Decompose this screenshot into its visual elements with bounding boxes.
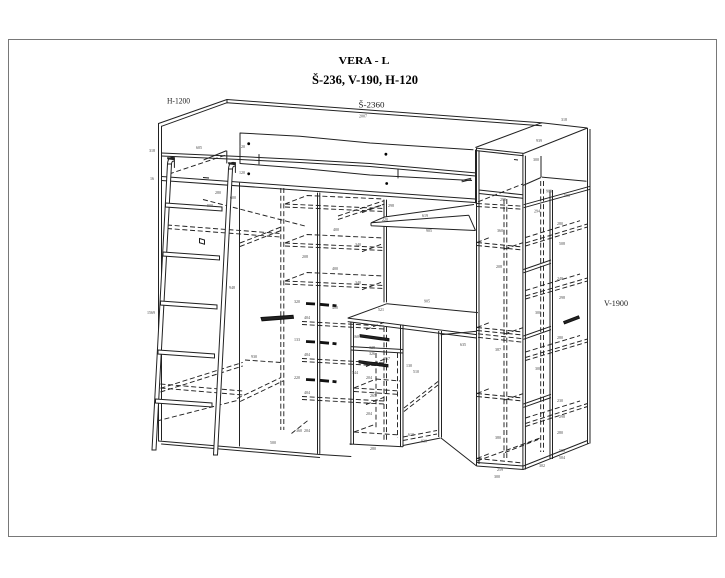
- svg-text:544: 544: [352, 370, 358, 375]
- svg-text:318: 318: [561, 117, 567, 122]
- svg-text:204: 204: [304, 428, 310, 433]
- svg-text:1569: 1569: [147, 310, 155, 315]
- svg-text:510: 510: [413, 369, 419, 374]
- svg-text:404: 404: [304, 315, 310, 320]
- svg-text:259: 259: [497, 467, 503, 472]
- svg-text:VERA - L: VERA - L: [339, 56, 390, 67]
- svg-text:280: 280: [370, 446, 376, 451]
- svg-text:320: 320: [294, 299, 300, 304]
- svg-text:280: 280: [557, 430, 563, 435]
- svg-text:500: 500: [559, 448, 565, 453]
- svg-text:635: 635: [460, 342, 466, 347]
- svg-text:130: 130: [406, 363, 412, 368]
- svg-text:903: 903: [546, 189, 552, 194]
- svg-text:360: 360: [497, 228, 503, 233]
- svg-text:298: 298: [559, 295, 565, 300]
- svg-text:298: 298: [559, 414, 565, 419]
- svg-text:360: 360: [296, 428, 302, 433]
- svg-text:400: 400: [332, 305, 338, 310]
- svg-text:400: 400: [332, 266, 338, 271]
- svg-text:340: 340: [355, 280, 361, 285]
- svg-text:484: 484: [304, 352, 310, 357]
- svg-text:120: 120: [239, 144, 245, 149]
- svg-text:619: 619: [422, 213, 428, 218]
- svg-text:340: 340: [355, 242, 361, 247]
- svg-text:905: 905: [424, 299, 430, 304]
- svg-text:300: 300: [535, 366, 541, 371]
- svg-text:404: 404: [304, 390, 310, 395]
- svg-text:120: 120: [239, 170, 245, 175]
- svg-text:280: 280: [557, 335, 563, 340]
- svg-text:610: 610: [408, 432, 414, 437]
- svg-text:204: 204: [366, 411, 372, 416]
- svg-text:326: 326: [369, 351, 375, 356]
- svg-text:939: 939: [536, 138, 542, 143]
- svg-text:220: 220: [294, 375, 300, 380]
- svg-text:508: 508: [559, 241, 565, 246]
- svg-text:318: 318: [149, 148, 155, 153]
- svg-text:294: 294: [534, 209, 540, 214]
- svg-text:240: 240: [557, 276, 563, 281]
- svg-text:328: 328: [369, 345, 375, 350]
- svg-text:948: 948: [229, 285, 235, 290]
- svg-text:300: 300: [535, 310, 541, 315]
- svg-text:400: 400: [333, 227, 339, 232]
- svg-text:300: 300: [494, 474, 500, 479]
- svg-text:302: 302: [539, 463, 545, 468]
- svg-text:220: 220: [382, 217, 388, 222]
- svg-text:905: 905: [426, 228, 432, 233]
- svg-text:930: 930: [421, 439, 427, 444]
- svg-text:267: 267: [384, 356, 390, 361]
- svg-text:380: 380: [495, 435, 501, 440]
- svg-text:H-1200: H-1200: [167, 97, 190, 106]
- svg-text:521: 521: [378, 307, 384, 312]
- svg-text:160: 160: [353, 334, 359, 339]
- svg-text:280: 280: [557, 221, 563, 226]
- svg-text:600: 600: [230, 195, 236, 200]
- svg-text:Š-2360: Š-2360: [359, 101, 385, 110]
- svg-text:280: 280: [215, 190, 221, 195]
- svg-text:204: 204: [366, 375, 372, 380]
- svg-text:387: 387: [495, 347, 501, 352]
- svg-text:298: 298: [388, 203, 394, 208]
- svg-text:2007: 2007: [359, 114, 367, 119]
- svg-text:265: 265: [370, 393, 376, 398]
- svg-text:500: 500: [564, 193, 570, 198]
- svg-text:900: 900: [207, 203, 213, 208]
- svg-text:230: 230: [557, 398, 563, 403]
- svg-text:V-1900: V-1900: [604, 298, 628, 308]
- svg-text:500: 500: [270, 440, 276, 445]
- svg-text:300: 300: [533, 157, 539, 162]
- svg-text:605: 605: [196, 145, 202, 150]
- svg-text:Š-236, V-190, H-120: Š-236, V-190, H-120: [312, 72, 418, 87]
- svg-text:208: 208: [302, 254, 308, 259]
- svg-text:208: 208: [496, 264, 502, 269]
- svg-text:299: 299: [500, 197, 506, 202]
- svg-text:16: 16: [150, 176, 154, 181]
- svg-text:504: 504: [559, 455, 565, 460]
- svg-text:930: 930: [251, 354, 257, 359]
- svg-text:133: 133: [294, 337, 300, 342]
